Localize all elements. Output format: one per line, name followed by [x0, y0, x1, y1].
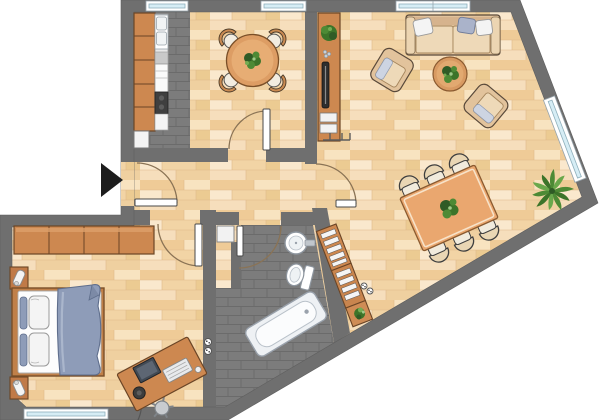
floor-plan-svg [0, 0, 606, 420]
kitchen-sink [155, 15, 168, 49]
pillow [29, 333, 49, 366]
cooktop [155, 92, 168, 114]
sofa-pillow [475, 19, 493, 36]
oven [155, 64, 168, 92]
floor-plan-page [0, 0, 606, 420]
nightstand [10, 267, 28, 289]
tv-sideboard [318, 13, 340, 141]
bolster-pillow [20, 334, 27, 366]
living-window [396, 1, 470, 11]
double-bed [12, 285, 104, 376]
entrance-opening [121, 162, 134, 206]
sofa-pillow [413, 17, 434, 36]
pillow [29, 296, 49, 329]
coffee-table [433, 57, 467, 91]
dining-window [261, 1, 306, 11]
potted-plant [321, 25, 337, 41]
sofa-pillow [457, 17, 476, 34]
kitchen-window [146, 1, 188, 11]
kitchen-counter [134, 13, 168, 148]
bolster-pillow [20, 297, 27, 329]
wardrobe [14, 226, 154, 254]
shaft [217, 226, 234, 242]
kitchen-shaft-niche [134, 131, 149, 148]
entrance-arrow-icon [101, 163, 123, 197]
nightstand [10, 377, 28, 399]
bedroom-window [24, 409, 108, 419]
dining-round-table-group [215, 25, 290, 96]
sofa [406, 15, 500, 55]
